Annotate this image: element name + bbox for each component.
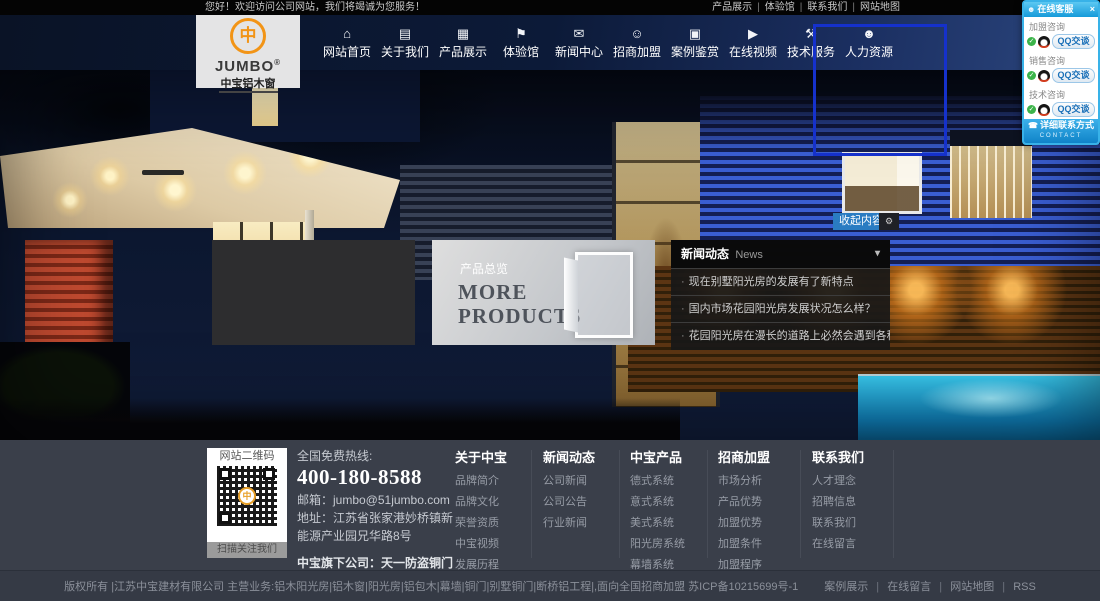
service-group-label: 销售咨询: [1024, 51, 1098, 68]
welcome-message: 您好！欢迎访问公司网站，我们将竭诚为您服务！: [205, 0, 425, 15]
top-link-contact[interactable]: 联系我们: [807, 2, 847, 13]
nav-item-news[interactable]: ✉ 新闻中心: [550, 24, 608, 61]
qq-chat-button[interactable]: QQ交谈: [1052, 68, 1095, 83]
footer-link[interactable]: 公司新闻: [543, 471, 595, 492]
footer-column-title: 招商加盟: [718, 448, 773, 468]
qq-chat-button[interactable]: QQ交谈: [1052, 34, 1095, 49]
top-link-showroom[interactable]: 体验馆: [765, 2, 795, 13]
nav-menu: ⌂ 网站首页 ▤ 关于我们 ▦ 产品展示 ⚑ 体验馆 ✉ 新闻中心 ☺ 招商加盟: [318, 24, 898, 61]
shield-icon: ⚑: [492, 24, 550, 43]
news-item-title: 花园阳光房在漫长的道路上必然会遇到各种挑战: [689, 330, 890, 342]
news-item[interactable]: ·现在别墅阳光房的发展有了新特点: [671, 268, 890, 295]
service-panel-title: 在线客服: [1037, 2, 1089, 17]
selection-outline: [813, 24, 947, 156]
footer-link[interactable]: 在线留言: [812, 534, 864, 555]
qr-corner: [219, 512, 231, 524]
footer-link[interactable]: 加盟条件: [718, 534, 773, 555]
bullet: ·: [681, 330, 685, 342]
nav-item-cases[interactable]: ▣ 案例鉴赏: [666, 24, 724, 61]
footer-link[interactable]: 美式系统: [630, 513, 685, 534]
service-row: ✓ QQ交谈: [1024, 68, 1098, 85]
footer-link[interactable]: 产品优势: [718, 492, 773, 513]
separator: |: [939, 581, 942, 593]
footer-link[interactable]: 人才理念: [812, 471, 864, 492]
contact-details-label: 详细联系方式: [1040, 120, 1094, 130]
qr-code-image: 中: [217, 466, 277, 526]
bullet: ·: [681, 303, 685, 315]
gear-icon[interactable]: ⚙: [879, 213, 899, 230]
online-status-icon: ✓: [1027, 105, 1036, 114]
page: 您好！欢迎访问公司网站，我们将竭诚为您服务！ 产品展示|体验馆|联系我们|网站地…: [0, 0, 1100, 601]
grid-icon: ▦: [434, 24, 492, 43]
brand-subtitle: 中宝铝木窗: [219, 78, 278, 93]
nav-label: 产品展示: [439, 45, 487, 59]
qq-penguin-icon: [1038, 104, 1050, 116]
footer-link[interactable]: 意式系统: [630, 492, 685, 513]
nav-item-about[interactable]: ▤ 关于我们: [376, 24, 434, 61]
contact-details-sub: CONTACT: [1024, 132, 1098, 140]
brand-text: JUMBO: [215, 58, 274, 75]
registered-mark: ®: [274, 58, 281, 67]
divider: [707, 450, 708, 558]
footer-column-contact: 联系我们 人才理念 招聘信息 联系我们 在线留言: [812, 448, 864, 555]
qr-title: 网站二维码: [207, 448, 287, 465]
news-title: 新闻动态: [681, 247, 729, 261]
news-panel-header: 新闻动态 News ▾: [671, 240, 890, 268]
copyright-text: 版权所有 |江苏中宝建材有限公司 主营业务:铝木阳光房|铝木窗|阳光房|铝包木|…: [64, 578, 798, 594]
window-sash: [564, 258, 578, 333]
qr-caption: 扫描关注我们: [207, 542, 287, 558]
service-group-label: 技术咨询: [1024, 85, 1098, 102]
footer-column-title: 关于中宝: [455, 448, 507, 468]
footer-column-title: 中宝产品: [630, 448, 685, 468]
close-icon[interactable]: ×: [1090, 2, 1095, 17]
nav-label: 体验馆: [503, 45, 539, 59]
home-icon: ⌂: [318, 24, 376, 43]
book-icon: ▤: [376, 24, 434, 43]
hero-ceiling-fan: [142, 170, 184, 175]
footer-link[interactable]: 德式系统: [630, 471, 685, 492]
nav-label: 案例鉴赏: [671, 45, 719, 59]
news-panel: 新闻动态 News ▾ ·现在别墅阳光房的发展有了新特点 ·国内市场花园阳光房发…: [671, 240, 890, 350]
photo-icon: ▣: [666, 24, 724, 43]
nav-item-home[interactable]: ⌂ 网站首页: [318, 24, 376, 61]
qq-chat-button[interactable]: QQ交谈: [1052, 102, 1095, 117]
news-item[interactable]: ·国内市场花园阳光房发展状况怎么样？: [671, 295, 890, 322]
separator: |: [1002, 581, 1005, 593]
divider: [531, 450, 532, 558]
brand-emblem-icon: 中: [238, 487, 256, 505]
footer-column-title: 联系我们: [812, 448, 864, 468]
divider: [619, 450, 620, 558]
nav-item-showroom[interactable]: ⚑ 体验馆: [492, 24, 550, 61]
bottom-link-cases[interactable]: 案例展示: [824, 581, 868, 593]
chat-icon: ✉: [550, 24, 608, 43]
hero-ground: [0, 398, 680, 440]
divider: [800, 450, 801, 558]
footer-link[interactable]: 招聘信息: [812, 492, 864, 513]
hero-lit-window: [842, 152, 922, 214]
qq-penguin-icon: [1038, 70, 1050, 82]
site-logo[interactable]: 中 JUMBO® 中宝铝木窗: [196, 15, 300, 88]
nav-item-franchise[interactable]: ☺ 招商加盟: [608, 24, 666, 61]
footer-contact-block: 全国免费热线: 400-180-8588 邮箱：jumbo@51jumbo.co…: [297, 448, 459, 572]
online-status-icon: ✓: [1027, 71, 1036, 80]
service-group-label: 加盟咨询: [1024, 17, 1098, 34]
copyright-bar: 版权所有 |江苏中宝建材有限公司 主营业务:铝木阳光房|铝木窗|阳光房|铝包木|…: [0, 570, 1100, 601]
footer-link[interactable]: 市场分析: [718, 471, 773, 492]
footer-link[interactable]: 品牌简介: [455, 471, 507, 492]
qr-corner: [219, 468, 231, 480]
hero-red-slat-wall: [25, 240, 113, 358]
top-utility-bar: 您好！欢迎访问公司网站，我们将竭诚为您服务！ 产品展示|体验馆|联系我们|网站地…: [0, 0, 1100, 15]
phone-icon: ☎: [1028, 121, 1038, 130]
chevron-down-icon[interactable]: ▾: [875, 240, 880, 268]
separator: |: [800, 2, 803, 13]
qq-penguin-icon: [1038, 36, 1050, 48]
email-line: 邮箱：jumbo@51jumbo.com: [297, 491, 459, 509]
contact-details-button[interactable]: ☎详细联系方式 CONTACT: [1024, 119, 1098, 143]
footer-column-news: 新闻动态 公司新闻 公司公告 行业新闻: [543, 448, 595, 534]
hero-balcony: [950, 130, 1032, 218]
nav-item-products[interactable]: ▦ 产品展示: [434, 24, 492, 61]
footer-link[interactable]: 中宝视频: [455, 534, 507, 555]
more-products-banner[interactable]: 产品总览 MORE PRODUCTS: [432, 240, 655, 345]
footer-link[interactable]: 加盟优势: [718, 513, 773, 534]
product-overview-label: 产品总览: [460, 260, 508, 277]
separator: |: [757, 2, 760, 13]
person-icon: ☻: [1027, 2, 1035, 17]
window-product-image: [575, 252, 633, 338]
nav-label: 关于我们: [381, 45, 429, 59]
qr-corner: [263, 468, 275, 480]
nav-label: 招商加盟: [613, 45, 661, 59]
bottom-link-message[interactable]: 在线留言: [887, 581, 931, 593]
carousel-dark-panel: [212, 240, 415, 345]
hero-pool: [858, 374, 1100, 440]
video-play-icon: ▶: [724, 24, 782, 43]
address-line: 地址：江苏省张家港妙桥镇新能源产业园兄华路8号: [297, 509, 459, 545]
service-row: ✓ QQ交谈: [1024, 102, 1098, 119]
brand-name: JUMBO®: [196, 55, 300, 74]
bullet: ·: [681, 276, 685, 288]
divider: [893, 450, 894, 558]
nav-label: 网站首页: [323, 45, 371, 59]
hotline-label: 全国免费热线:: [297, 448, 459, 464]
footer-link[interactable]: 行业新闻: [543, 513, 595, 534]
top-link-sitemap[interactable]: 网站地图: [860, 2, 900, 13]
online-status-icon: ✓: [1027, 37, 1036, 46]
service-row: ✓ QQ交谈: [1024, 34, 1098, 51]
brand-emblem-icon: 中: [230, 18, 266, 54]
top-links: 产品展示|体验馆|联系我们|网站地图: [712, 0, 900, 15]
separator: |: [876, 581, 879, 593]
top-link-products[interactable]: 产品展示: [712, 2, 752, 13]
footer: 网站二维码 中 扫描关注我们 全国免费热线: 400-180-8588 邮箱：j…: [0, 440, 1100, 570]
member-add-icon: ☺: [608, 24, 666, 43]
nav-label: 新闻中心: [555, 45, 603, 59]
news-item-title: 现在别墅阳光房的发展有了新特点: [689, 276, 854, 288]
nav-item-videos[interactable]: ▶ 在线视频: [724, 24, 782, 61]
bottom-link-sitemap[interactable]: 网站地图: [950, 581, 994, 593]
footer-link[interactable]: 荣誉资质: [455, 513, 507, 534]
service-panel-header: ☻ 在线客服 ×: [1024, 2, 1098, 17]
news-item-title: 国内市场花园阳光房发展状况怎么样？: [689, 303, 876, 315]
online-service-panel: ☻ 在线客服 × 加盟咨询 ✓ QQ交谈 销售咨询 ✓ QQ交谈 技术咨询 ✓ …: [1022, 0, 1100, 145]
bottom-links: 案例展示 | 在线留言 | 网站地图 | RSS: [824, 578, 1036, 594]
hotline-number: 400-180-8588: [297, 464, 459, 491]
footer-link[interactable]: 联系我们: [812, 513, 864, 534]
footer-link[interactable]: 品牌文化: [455, 492, 507, 513]
footer-link[interactable]: 公司公告: [543, 492, 595, 513]
nav-label: 在线视频: [729, 45, 777, 59]
news-subtitle: News: [735, 249, 763, 261]
qr-code-card: 网站二维码 中 扫描关注我们: [207, 448, 287, 558]
footer-link[interactable]: 阳光房系统: [630, 534, 685, 555]
footer-column-title: 新闻动态: [543, 448, 595, 468]
separator: |: [852, 2, 855, 13]
news-item[interactable]: ·花园阳光房在漫长的道路上必然会遇到各种挑战: [671, 322, 890, 349]
bottom-link-rss[interactable]: RSS: [1013, 581, 1036, 593]
